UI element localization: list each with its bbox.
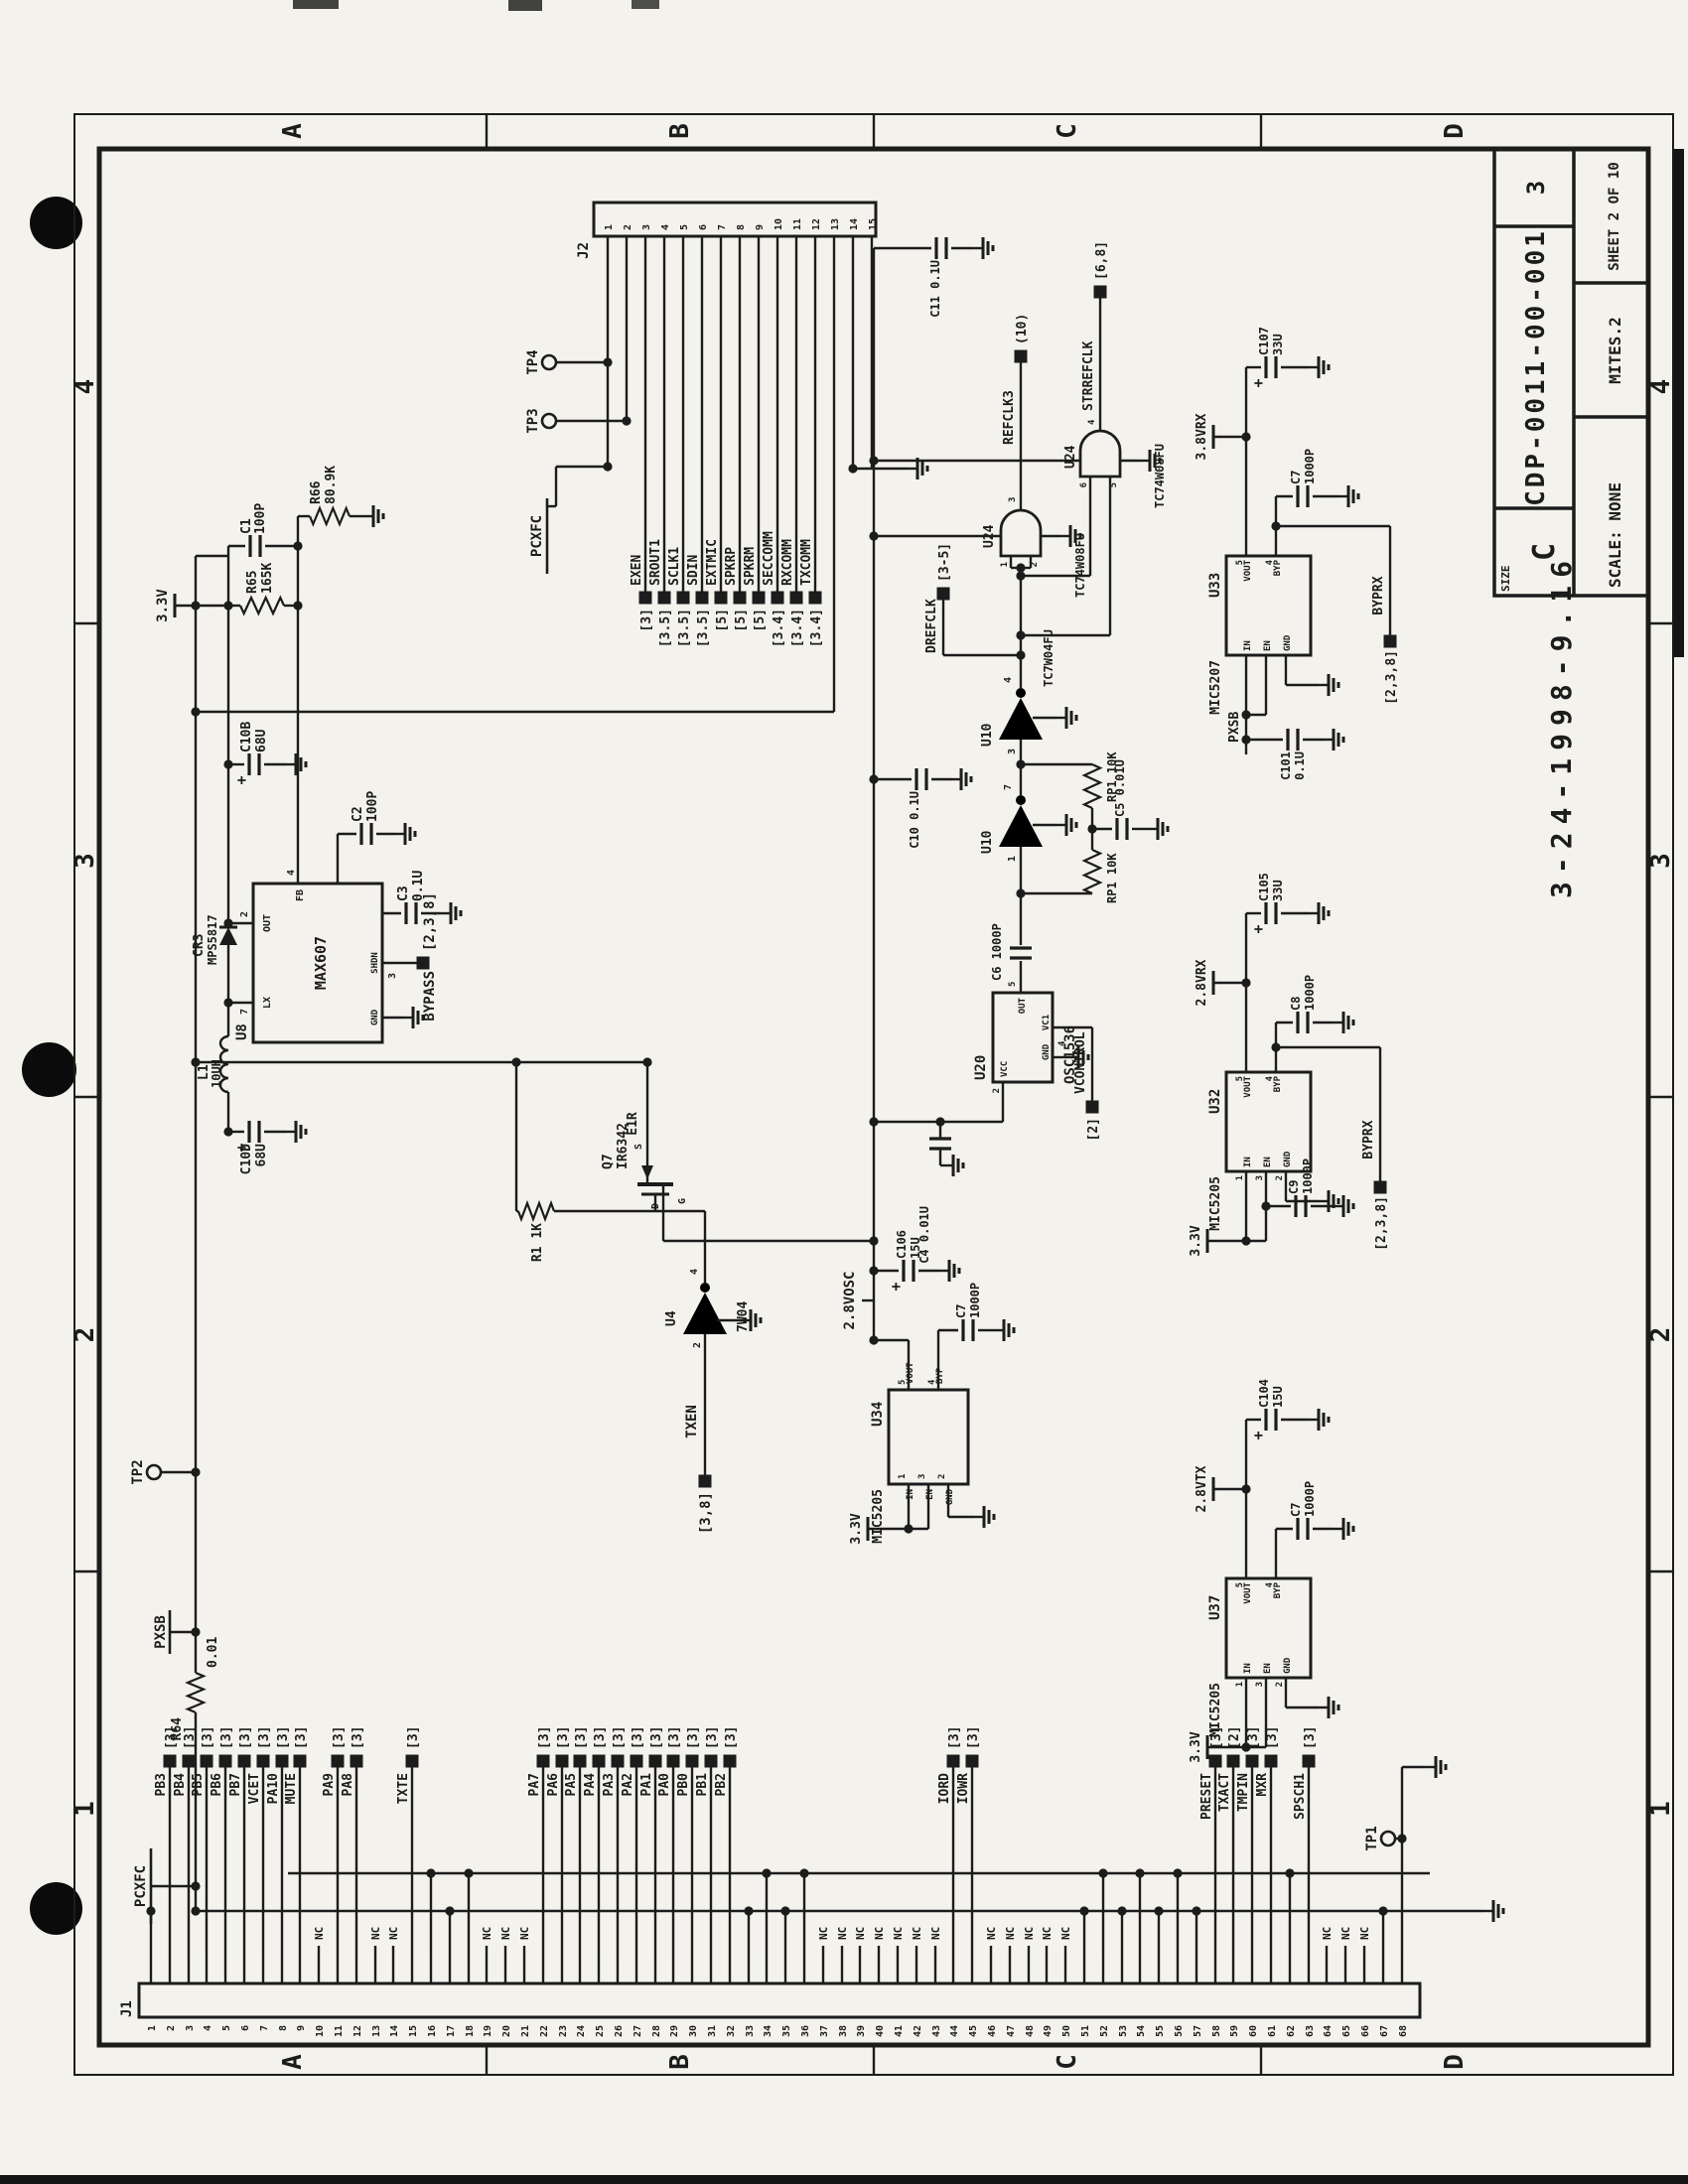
label-47: 47: [1006, 2025, 1017, 2037]
label-2: [2]: [1086, 1118, 1101, 1141]
label-48: 48: [1025, 2025, 1036, 2037]
label-c105: C105: [1257, 873, 1271, 901]
label-cdp-0011-00-001: CDP-0011-00-001: [1521, 228, 1551, 506]
label-c107: C107: [1257, 327, 1271, 355]
label-12: 12: [811, 218, 822, 230]
label-3: [3]: [238, 1726, 253, 1749]
offpage-ref-square: [1303, 1755, 1316, 1768]
label-1: 1: [1235, 1682, 1245, 1687]
offpage-ref-square: [699, 1475, 712, 1488]
label-3-5: [3.5]: [658, 609, 673, 647]
label-a: A: [278, 123, 308, 139]
label-4: 4: [1003, 677, 1014, 683]
label-3: [3]: [294, 1726, 309, 1749]
label-pb5: PB5: [191, 1773, 206, 1796]
label-3-24-1998-9-16: 3-24-1998-9.16: [1545, 553, 1578, 898]
label-tp3: TP3: [525, 408, 541, 433]
label-pa5: PA5: [564, 1773, 579, 1796]
label-64: 64: [1323, 2025, 1334, 2037]
label-nc: NC: [387, 1927, 400, 1940]
label-50: 50: [1061, 2025, 1072, 2037]
junction-dot: [904, 1524, 913, 1533]
label-5: [5]: [753, 609, 768, 631]
label-53: 53: [1118, 2025, 1129, 2037]
label-38: 38: [838, 2025, 849, 2037]
label-4: 4: [70, 379, 100, 395]
label-scale-none: SCALE: NONE: [1606, 482, 1624, 588]
junction-dot: [464, 1868, 473, 1877]
label-mites-2: MITES.2: [1606, 317, 1624, 383]
label-3: [3]: [406, 1726, 421, 1749]
label-mic5207: MIC5207: [1208, 660, 1223, 715]
offpage-ref-square: [574, 1755, 587, 1768]
junction-dot: [1154, 1906, 1163, 1915]
label-cr3: CR3: [192, 934, 207, 957]
label-2: 2: [937, 1474, 947, 1479]
label-3: [3]: [574, 1726, 589, 1749]
label-33: 33: [745, 2025, 756, 2037]
label-out: OUT: [1018, 997, 1028, 1014]
label-c: C: [1053, 2054, 1082, 2070]
offpage-ref-square: [556, 1755, 569, 1768]
offpage-ref-square: [790, 592, 803, 605]
junction-dot: [191, 707, 200, 716]
label-c7: C7: [1289, 1503, 1303, 1517]
junction-dot: [146, 1906, 155, 1915]
offpage-ref-square: [696, 592, 709, 605]
label-1: 1: [604, 224, 615, 230]
label-drefclk: DREFCLK: [924, 599, 939, 653]
label-pxsb: PXSB: [1227, 712, 1242, 743]
label-3: [3]: [667, 1726, 682, 1749]
label-u4: U4: [664, 1310, 679, 1326]
title-block: [1494, 149, 1648, 596]
label-3-5: [3-5]: [937, 543, 952, 582]
label-gnd: GND: [1283, 634, 1293, 651]
label-u32: U32: [1207, 1089, 1223, 1114]
label-3: [3]: [724, 1726, 739, 1749]
label-3: [3]: [351, 1726, 365, 1749]
offpage-ref-square: [164, 1755, 177, 1768]
junction-dot: [1241, 1236, 1250, 1245]
label-8: 8: [736, 224, 747, 230]
label-bypass: BYPASS: [422, 971, 438, 1022]
label-c104: C104: [1257, 1379, 1271, 1408]
label-c9: C9: [1287, 1180, 1301, 1194]
offpage-ref-square: [753, 592, 766, 605]
offpage-ref-square: [238, 1755, 251, 1768]
label-c101: C101: [1279, 751, 1293, 780]
label-c3: C3: [396, 886, 411, 901]
label-2: 2: [692, 1342, 703, 1348]
label-3: 3: [1255, 1175, 1265, 1180]
junction-dot: [1117, 1906, 1126, 1915]
label-61: 61: [1267, 2025, 1278, 2037]
label-c1: C1: [239, 518, 254, 534]
label-9: 9: [755, 224, 766, 230]
label-c10b: C10B: [239, 722, 254, 752]
offpage-ref-square: [183, 1755, 196, 1768]
offpage-ref-square: [734, 592, 747, 605]
label-24: 24: [576, 2025, 587, 2037]
label-13: 13: [830, 218, 841, 230]
offpage-ref-square: [417, 957, 430, 970]
label-nc: NC: [817, 1927, 830, 1940]
label-13: 13: [371, 2025, 382, 2037]
label-22: 22: [539, 2025, 550, 2037]
label-5: 5: [679, 224, 690, 230]
label-1: 1: [898, 1474, 908, 1479]
label-5: [5]: [715, 609, 730, 631]
label-3: [3]: [612, 1726, 627, 1749]
label-1: 1: [1007, 856, 1018, 862]
junction-dot: [1285, 1868, 1294, 1877]
label-c10d: C10D: [239, 1144, 254, 1174]
label-seccomm: SECCOMM: [762, 531, 776, 586]
label-c10-0-1u: C10 0.1U: [908, 791, 921, 849]
offpage-ref-square: [1265, 1755, 1278, 1768]
offpage-ref-square: [294, 1755, 307, 1768]
inverter-gate: [683, 1293, 727, 1334]
label-nc: NC: [313, 1927, 326, 1940]
label-txcomm: TXCOMM: [799, 539, 814, 586]
label-pb6: PB6: [210, 1773, 224, 1797]
label-pa4: PA4: [583, 1773, 598, 1797]
label-3-3v: 3.3V: [155, 589, 171, 622]
label-u10: U10: [980, 723, 995, 747]
label-68: 68: [1398, 2025, 1409, 2037]
offpage-ref-square: [1384, 635, 1397, 648]
label-byp: BYP: [935, 1367, 945, 1384]
label-7: 7: [717, 224, 728, 230]
label-1000p: 1000P: [1303, 975, 1317, 1011]
junction-dot: [191, 1881, 200, 1890]
label-45: 45: [968, 2025, 979, 2037]
label-15: 15: [408, 2025, 419, 2037]
label-3: [3]: [705, 1726, 720, 1749]
label-pb2: PB2: [714, 1773, 729, 1796]
label-3: 3: [185, 2025, 196, 2031]
label-1: 1: [1235, 1175, 1245, 1180]
label-vout: VOUT: [1243, 559, 1253, 581]
label-pa7: PA7: [527, 1773, 542, 1796]
label-vout: VOUT: [1243, 1075, 1253, 1097]
label-2-3-8: [2,3,8]: [1374, 1196, 1389, 1251]
label-spsch1: SPSCH1: [1293, 1773, 1308, 1820]
resistor: [518, 1203, 554, 1219]
label-byp: BYP: [1273, 559, 1283, 576]
label-27: 27: [633, 2025, 643, 2037]
label-0-1u: 0.1U: [1293, 751, 1307, 780]
label-j1: J1: [119, 2000, 135, 2017]
label-3-8: [3,8]: [698, 1492, 714, 1534]
label-lx: LX: [262, 997, 273, 1009]
label-3: [3]: [639, 609, 654, 631]
label-2: [2]: [1227, 1726, 1242, 1749]
inverter-bubble: [1016, 688, 1026, 698]
label-52: 52: [1099, 2025, 1110, 2037]
inverter-bubble: [1016, 795, 1026, 805]
label-byprx: BYPRX: [1361, 1120, 1376, 1159]
label-3: [3]: [1265, 1726, 1280, 1749]
label-17: 17: [446, 2025, 457, 2037]
label-11: 11: [792, 218, 803, 230]
label-mic5205: MIC5205: [1208, 1176, 1223, 1231]
label-max607: MAX607: [312, 936, 330, 990]
label-nc: NC: [985, 1927, 998, 1940]
schematic-drawing: CDP-0011-00-001 11223344AABBCCDDSIZECCDP…: [0, 0, 1688, 2184]
label-nc: NC: [836, 1927, 849, 1940]
label-gnd: GND: [945, 1488, 955, 1505]
label-42: 42: [913, 2025, 923, 2037]
resistor: [240, 598, 284, 614]
label-gnd: GND: [1283, 1657, 1293, 1674]
offpage-ref-square: [677, 592, 690, 605]
label-pa8: PA8: [341, 1773, 355, 1797]
label-d: D: [650, 1203, 661, 1209]
label-r1-1k: R1 1K: [530, 1223, 545, 1262]
label-66: 66: [1360, 2025, 1371, 2037]
offpage-ref-square: [686, 1755, 699, 1768]
label-3-3v: 3.3V: [1189, 1225, 1203, 1256]
label-3: 3: [1522, 181, 1550, 195]
junction-dot: [1079, 1906, 1088, 1915]
label-49: 49: [1043, 2025, 1054, 2037]
label-34: 34: [763, 2025, 774, 2037]
label-txen: TXEN: [684, 1405, 700, 1438]
label-tp1: TP1: [1364, 1826, 1380, 1850]
label-en: EN: [925, 1489, 935, 1500]
label-3-5: [3.5]: [677, 609, 692, 647]
label-nc: NC: [1339, 1927, 1352, 1940]
label-2: 2: [239, 911, 250, 917]
label-1: 1: [1000, 562, 1010, 567]
label-c8: C8: [1289, 997, 1303, 1011]
label-20: 20: [501, 2025, 512, 2037]
label-31: 31: [707, 2025, 718, 2037]
label-2: 2: [1646, 1327, 1676, 1343]
label-3-8vrx: 3.8VRX: [1195, 413, 1209, 460]
label-pb7: PB7: [228, 1773, 243, 1796]
label-3: [3]: [631, 1726, 645, 1749]
label-3: 3: [1007, 749, 1018, 754]
label-in: IN: [906, 1489, 915, 1500]
label-3: 3: [70, 853, 100, 869]
label-refclk3: REFCLK3: [1002, 390, 1017, 445]
label-pcxfc: PCXFC: [529, 515, 545, 557]
label-tp4: TP4: [525, 349, 541, 374]
label-fb: FB: [295, 889, 306, 901]
label-u33: U33: [1207, 573, 1223, 598]
label-c11-0-1u: C11 0.1U: [928, 260, 942, 318]
junction-dot: [744, 1906, 753, 1915]
offpage-ref-square: [649, 1755, 662, 1768]
label-5: 5: [1008, 982, 1018, 987]
label-58: 58: [1211, 2025, 1222, 2037]
resistor: [1084, 764, 1100, 808]
label-35: 35: [781, 2025, 792, 2037]
label-4: 4: [203, 2025, 213, 2031]
and-gate: [1080, 431, 1120, 477]
label-byp: BYP: [1273, 1075, 1283, 1092]
diode: [219, 927, 237, 945]
label-txact: TXACT: [1217, 1773, 1232, 1812]
label-sdin: SDIN: [686, 555, 701, 586]
junction-dot: [1135, 1868, 1144, 1877]
label-c: C: [1053, 123, 1082, 139]
offpage-ref-square: [219, 1755, 232, 1768]
label-label: +: [887, 1282, 905, 1291]
label-nc: NC: [1321, 1927, 1334, 1940]
label-14: 14: [849, 218, 860, 230]
label-4: 4: [689, 1269, 700, 1275]
label-2-8vtx: 2.8VTX: [1195, 1465, 1209, 1512]
label-mic5205: MIC5205: [1208, 1683, 1223, 1737]
label-1: 1: [1646, 1801, 1676, 1817]
label-c6-1000p: C6 1000P: [990, 923, 1004, 981]
label-12: 12: [352, 2025, 363, 2037]
label-15u: 15U: [1271, 1386, 1285, 1408]
label-tc7w04fu: TC7W04FU: [1042, 629, 1055, 687]
label-pa6: PA6: [546, 1773, 561, 1797]
junction-dot: [1016, 759, 1025, 768]
label-1000p: 1000P: [1303, 449, 1317, 484]
offpage-ref-square: [631, 1755, 643, 1768]
label-vcc: VCC: [1000, 1061, 1010, 1077]
label-pa2: PA2: [621, 1773, 635, 1796]
label-extmic: EXTMIC: [705, 539, 720, 586]
label-3: [3]: [201, 1726, 215, 1749]
label-c7: C7: [1289, 471, 1303, 484]
label-pxsb: PXSB: [153, 1615, 169, 1649]
label-pb4: PB4: [173, 1773, 188, 1797]
label-3: [3]: [219, 1726, 234, 1749]
label-4: 4: [660, 224, 671, 230]
label-26: 26: [614, 2025, 625, 2037]
label-68u: 68U: [254, 729, 269, 752]
label-3: 3: [641, 224, 652, 230]
label-100p: 100P: [365, 791, 380, 822]
inverter-bubble: [700, 1283, 710, 1293]
junction-dot: [1192, 1906, 1200, 1915]
label-mxr: MXR: [1255, 1773, 1270, 1797]
junction-dot: [191, 1627, 200, 1636]
label-txte: TXTE: [396, 1773, 411, 1804]
junction-dot: [426, 1868, 435, 1877]
label-en: EN: [1263, 1663, 1273, 1674]
label-7w04: 7W04: [736, 1301, 751, 1332]
label-vc1: VC1: [1042, 1015, 1052, 1030]
label-nc: NC: [873, 1927, 886, 1940]
offpage-ref-square: [1374, 1181, 1387, 1194]
label-nc: NC: [1023, 1927, 1036, 1940]
label-sheet-2-of-10: SHEET 2 OF 10: [1607, 162, 1622, 271]
label-sclk1: SCLK1: [667, 547, 682, 586]
junction-dot: [1173, 1868, 1182, 1877]
junction-dot: [799, 1868, 808, 1877]
label-6: 6: [240, 2025, 251, 2031]
label-37: 37: [819, 2025, 830, 2037]
junction-dot: [869, 456, 878, 465]
label-40: 40: [875, 2025, 886, 2037]
label-en: EN: [1263, 640, 1273, 651]
label-4: 4: [1646, 379, 1676, 395]
label-10: 10: [774, 218, 784, 230]
label-in: IN: [1243, 1663, 1253, 1674]
label-vout: VOUT: [1243, 1581, 1253, 1603]
label-3: [3]: [537, 1726, 552, 1749]
label-nc: NC: [929, 1927, 942, 1940]
offpage-ref-square: [406, 1755, 419, 1768]
label-nc: NC: [1004, 1927, 1017, 1940]
label-3: 3: [1646, 853, 1676, 869]
label-2: 2: [166, 2025, 177, 2031]
label-nc: NC: [518, 1927, 531, 1940]
label-pa1: PA1: [639, 1773, 654, 1797]
label-c4-0-01u: C4 0.01U: [917, 1206, 931, 1264]
label-7: 7: [239, 1009, 250, 1015]
label-size: SIZE: [1499, 566, 1512, 593]
label-8: 8: [278, 2025, 289, 2031]
label-nc: NC: [481, 1927, 493, 1940]
label-d: D: [1440, 2054, 1470, 2070]
label-41: 41: [894, 2025, 905, 2037]
label-pa10: PA10: [266, 1773, 281, 1804]
label-6: 6: [698, 224, 709, 230]
junction-dot: [191, 1906, 200, 1915]
offpage-ref-square: [276, 1755, 289, 1768]
label-10uh: 10UH: [210, 1059, 223, 1088]
label-2-8vrx: 2.8VRX: [1195, 959, 1209, 1006]
label-in: IN: [1243, 1157, 1253, 1167]
testpoint-tp1: [1381, 1832, 1395, 1845]
label-100p: 100P: [253, 503, 268, 534]
label-label: +: [1249, 924, 1267, 933]
label-3-3v: 3.3V: [849, 1513, 864, 1544]
label-3-4: [3.4]: [790, 609, 805, 647]
testpoint-tp3: [542, 414, 556, 428]
label-3-4: [3.4]: [772, 609, 786, 647]
junction-dot: [780, 1906, 789, 1915]
label-2: 2: [623, 224, 633, 230]
label-67: 67: [1379, 2025, 1390, 2037]
label-u37: U37: [1207, 1595, 1223, 1620]
label-tp2: TP2: [130, 1459, 146, 1484]
offpage-ref-square: [667, 1755, 680, 1768]
label-vout: VOUT: [906, 1362, 915, 1384]
label-rp1-10k: RP1 10K: [1105, 751, 1119, 802]
label-s: S: [633, 1144, 644, 1150]
label-19: 19: [483, 2025, 493, 2037]
junction-dot: [1098, 1868, 1107, 1877]
offpage-ref-square: [658, 592, 671, 605]
testpoint-tp4: [542, 355, 556, 369]
label-srout1: SROUT1: [648, 539, 663, 586]
label-pa3: PA3: [602, 1773, 617, 1796]
label-vcontrol: VCONTROL: [1073, 1031, 1088, 1094]
label-43: 43: [931, 2025, 942, 2037]
label-2: 2: [1030, 562, 1040, 567]
label-ir6342: IR6342: [616, 1123, 631, 1169]
label-mute: MUTE: [284, 1773, 299, 1804]
label-in: IN: [1243, 640, 1253, 651]
label-59: 59: [1229, 2025, 1240, 2037]
label-28: 28: [651, 2025, 662, 2037]
and-gate: [1001, 510, 1041, 556]
label-6: 6: [1079, 482, 1089, 487]
label-label: +: [232, 775, 250, 784]
label-3-5: [3.5]: [696, 609, 711, 647]
